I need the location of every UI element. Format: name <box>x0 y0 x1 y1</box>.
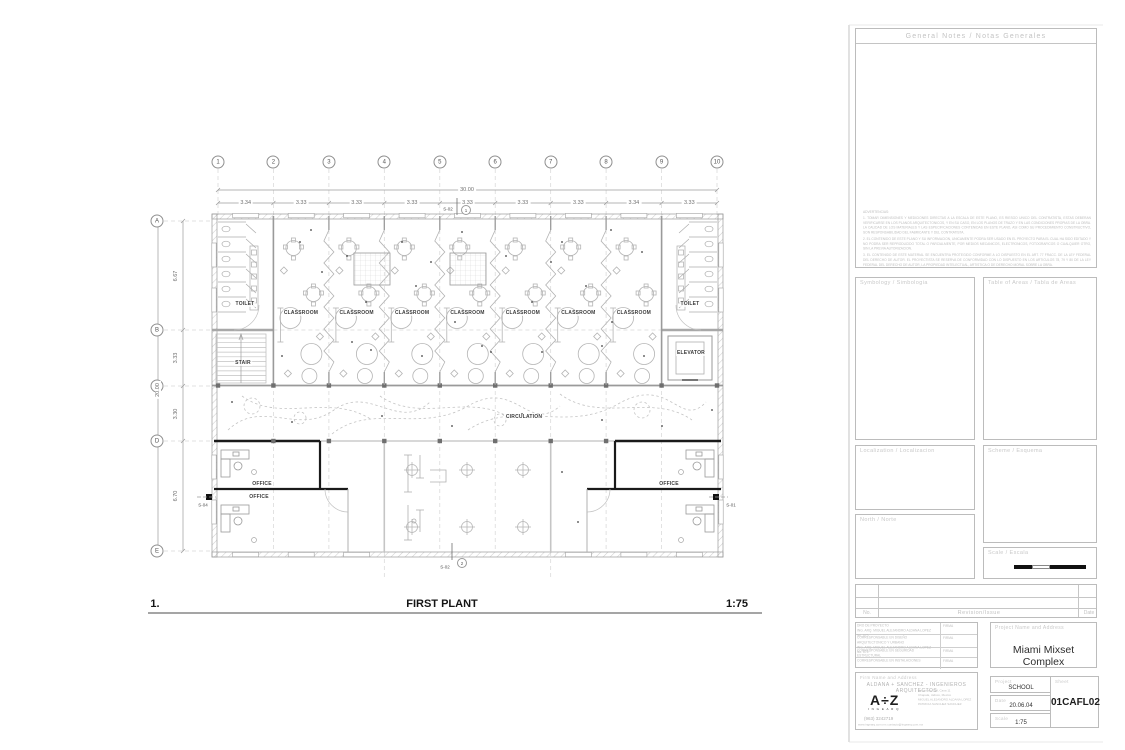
general-notes-header: General Notes / Notas Generales <box>856 29 1096 44</box>
dim-seg: 3.33 <box>571 200 586 206</box>
advertencia-item: 1. TOMAR DIMENSIONES Y MEDICIONES DIRECT… <box>863 216 1091 236</box>
room-label-classroom-6: CLASSROOM <box>560 310 596 316</box>
grid-bubble-col-7: 7 <box>544 156 557 169</box>
info-date-cell: Date 20.06.04 <box>990 695 1052 711</box>
firm-web: www.ingearq.com.mx contacto@ingearq.com.… <box>858 723 977 732</box>
room-label-office-left-2: OFFICE <box>248 494 270 500</box>
project-name-label: Project Name and Address <box>995 625 1064 631</box>
responsable-name: ING. ARQ. MIGUEL ALEJANDRO ALDANA LOPEZ <box>857 628 937 633</box>
responsable-row: CORRESPONSABLE EN INSTALACIONES FIRMA <box>856 658 977 669</box>
dim-seg: 3.33 <box>682 200 697 206</box>
office-furniture <box>221 450 714 543</box>
grid-bubble-col-2: 2 <box>267 156 280 169</box>
localization-label: Localization / Localizacion <box>860 448 935 454</box>
grid-bubble-col-6: 6 <box>489 156 502 169</box>
revision-issue-header: Revision/Issue <box>958 610 1001 616</box>
firma-label: FIRMA <box>943 649 963 654</box>
dim-seg-left: 6.70 <box>173 489 179 504</box>
grid-bubble-col-9: 9 <box>655 156 668 169</box>
grid-lines <box>164 169 717 578</box>
room-label-classroom-1: CLASSROOM <box>283 310 319 316</box>
section-markers <box>197 198 728 560</box>
section-marker-bottom-label: S-02 <box>439 565 451 570</box>
grid-bubble-row-d: D <box>151 435 164 448</box>
grid-bubble-row-e: E <box>151 545 164 558</box>
firm-logo-subtext: I N G E A R Q <box>868 708 900 711</box>
info-scale-value: 1:75 <box>991 720 1051 726</box>
section-marker-right-label: S-01 <box>725 503 737 508</box>
firm-logo: A÷Z <box>870 692 899 708</box>
info-sheet-cell: Sheet 01CAFL02 <box>1050 676 1099 728</box>
responsable-row: DRO DE PROYECTO ING. ARQ. MIGUEL ALEJAND… <box>856 623 977 635</box>
symbology-label: Symbology / Simbologia <box>860 280 928 286</box>
room-label-office-right: OFFICE <box>658 481 680 487</box>
dim-seg: 3.33 <box>405 200 420 206</box>
service-rooms <box>216 222 717 383</box>
responsable-row: CORRESPONSABLE EN SEGURIDAD ESTRUCTURAL … <box>856 648 977 658</box>
elevator-shaft <box>668 336 712 380</box>
room-label-classroom-2: CLASSROOM <box>338 310 374 316</box>
dim-seg: 3.34 <box>627 200 642 206</box>
room-label-classroom-5: CLASSROOM <box>505 310 541 316</box>
room-label-stair: STAIR <box>234 360 252 366</box>
localization-box: Localization / Localizacion <box>855 445 975 510</box>
scheme-box: Scheme / Esquema <box>983 445 1097 543</box>
section-marker-bottom-bubble: 2 <box>457 558 467 568</box>
info-project-cell: Project SCHOOL <box>990 676 1052 693</box>
dim-total-height: 20.00 <box>155 381 161 399</box>
info-scale-cell: Scale 1:75 <box>990 713 1052 728</box>
room-label-office-left-1: OFFICE <box>251 481 273 487</box>
stair <box>216 334 266 383</box>
dimension-lines <box>158 188 719 553</box>
caption-scale: 1:75 <box>726 598 748 610</box>
grid-bubble-col-1: 1 <box>212 156 225 169</box>
room-label-classroom-4: CLASSROOM <box>449 310 485 316</box>
responsable-row: CORRESPONSABLE EN DISEÑO ARQUITECTONICO … <box>856 635 977 648</box>
grid-bubble-row-b: B <box>151 324 164 337</box>
circulation-paths <box>228 394 706 434</box>
room-label-classroom-7: CLASSROOM <box>616 310 652 316</box>
dim-seg: 3.33 <box>516 200 531 206</box>
caption-title: FIRST PLANT <box>406 598 478 610</box>
areas-box: Table of Areas / Tabla de Areas <box>983 277 1097 440</box>
project-name-value: Miami Mixset Complex <box>991 644 1096 668</box>
room-label-elevator: ELEVATOR <box>676 350 706 356</box>
caption-number: 1. <box>150 598 159 610</box>
scale-bar-segment <box>1014 565 1032 569</box>
north-label: North / Norte <box>860 517 897 523</box>
advertencia-item: 2. EL CONTENIDO DE ESTE PLANO Y SU INFOR… <box>863 237 1091 252</box>
areas-label: Table of Areas / Tabla de Areas <box>988 280 1076 286</box>
firma-label: FIRMA <box>943 636 963 641</box>
advertencias-title: ADVERTENCIAS: <box>863 210 1091 215</box>
firma-label: FIRMA <box>943 624 963 629</box>
grid-bubble-col-10: 10 <box>711 156 724 169</box>
info-date-value: 20.06.04 <box>991 703 1051 709</box>
advertencia-item: 3. EL CONTENIDO DE ESTE MATERIAL SE ENCU… <box>863 253 1091 268</box>
responsables-table: DRO DE PROYECTO ING. ARQ. MIGUEL ALEJAND… <box>855 622 978 668</box>
dim-total-width: 30.00 <box>458 187 476 193</box>
firm-box: Firm Name and Address ALDANA + SANCHEZ -… <box>855 672 978 730</box>
dim-seg-left: 6.67 <box>173 268 179 283</box>
section-marker-top-bubble: 1 <box>461 205 471 215</box>
scale-box-label: Scale / Escala <box>988 550 1028 556</box>
revision-no-header: No. <box>863 610 871 616</box>
firma-label: FIRMA <box>943 659 963 664</box>
grid-bubble-col-8: 8 <box>600 156 613 169</box>
drawing-sheet: { "plan": { "grid_columns": ["1","2","3"… <box>0 0 1125 750</box>
project-name-box: Project Name and Address Miami Mixset Co… <box>990 622 1097 668</box>
scale-bar-segment <box>1050 565 1086 569</box>
grid-bubble-col-4: 4 <box>378 156 391 169</box>
firm-address: Tamarindo 108, Casa 11 Chapala, Jalisco,… <box>918 689 976 725</box>
room-label-toilet-left: TOILET <box>235 301 256 307</box>
info-project-value: SCHOOL <box>991 685 1051 691</box>
north-box: North / Norte <box>855 514 975 579</box>
info-sheet-label: Sheet <box>1055 679 1069 684</box>
responsable-role: CORRESPONSABLE EN INSTALACIONES <box>857 659 937 664</box>
section-marker-left-label: S-04 <box>197 503 209 508</box>
general-notes-box: General Notes / Notas Generales ADVERTEN… <box>855 28 1097 268</box>
dim-seg-left: 3.33 <box>173 351 179 366</box>
grid-bubble-row-a: A <box>151 215 164 228</box>
info-project-label: Project <box>995 679 1012 684</box>
responsable-role: CORRESPONSABLE EN DISEÑO ARQUITECTONICO … <box>857 636 937 646</box>
revision-date-header: Date <box>1084 610 1095 616</box>
dim-seg-left: 3.30 <box>173 406 179 421</box>
section-marker-top-label: S-02 <box>442 207 454 212</box>
dim-seg: 3.34 <box>238 200 253 206</box>
firm-label: Firm Name and Address <box>860 675 917 680</box>
grid-bubble-col-3: 3 <box>322 156 335 169</box>
room-label-circulation: CIRCULATION <box>505 414 543 420</box>
firm-phone: (963) 3242719 <box>864 716 893 721</box>
symbology-box: Symbology / Simbologia <box>855 277 975 440</box>
scale-bar-segment <box>1032 565 1050 569</box>
info-sheet-value: 01CAFL02 <box>1051 697 1098 708</box>
room-label-classroom-3: CLASSROOM <box>394 310 430 316</box>
grid-bubble-col-5: 5 <box>433 156 446 169</box>
scheme-label: Scheme / Esquema <box>988 448 1042 454</box>
dim-seg: 3.33 <box>294 200 309 206</box>
dim-seg: 3.33 <box>349 200 364 206</box>
scale-box: Scale / Escala <box>983 547 1097 579</box>
revision-table: No. Revision/Issue Date <box>855 584 1097 618</box>
room-label-toilet-right: TOILET <box>680 301 701 307</box>
responsable-role: CORRESPONSABLE EN SEGURIDAD ESTRUCTURAL <box>857 649 937 659</box>
